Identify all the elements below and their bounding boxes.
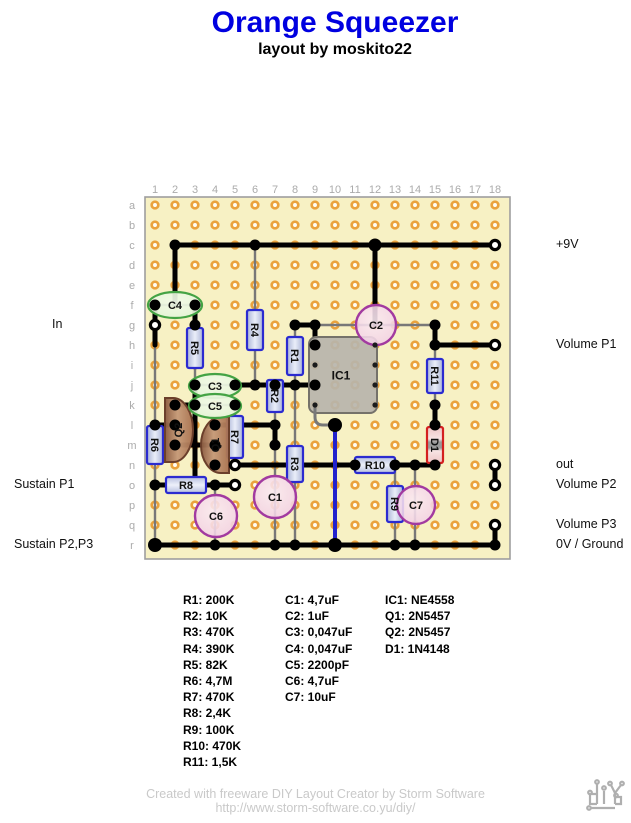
ic-pin [312,362,317,367]
terminal-pad[interactable] [230,480,239,489]
grid-column-label: 8 [292,184,298,196]
hole [192,262,199,269]
hole [492,222,499,229]
hole [472,422,479,429]
junction-dot [430,320,441,331]
hole [272,282,279,289]
hole [372,442,379,449]
hole [152,202,159,209]
hole [432,202,439,209]
component-label: R9 [388,497,400,511]
hole [172,322,179,329]
junction-dot [290,540,301,551]
hole [472,402,479,409]
grid-row-label: p [129,500,135,512]
hole [492,262,499,269]
diy-logo-glyph [587,780,624,810]
component-label: R7 [228,430,240,444]
junction-dot [310,340,321,351]
hole [292,282,299,289]
hole [452,362,459,369]
hole [472,462,479,469]
hole [352,482,359,489]
hole [352,422,359,429]
hole [232,302,239,309]
hole [232,202,239,209]
junction-dot [270,420,281,431]
hole [272,342,279,349]
grid-row-label: n [129,460,135,472]
ic-pin [372,402,377,407]
component-label: C5 [208,401,222,413]
component-label: IC1 [332,368,351,382]
hole [232,342,239,349]
hole [252,402,259,409]
legend-entry: C7: 10uF [285,689,352,705]
component-label: R5 [188,341,200,355]
ic-pin [372,342,377,347]
legend-entry: Q1: 2N5457 [385,608,454,624]
hole [452,382,459,389]
hole [152,282,159,289]
hole [392,282,399,289]
hole [472,362,479,369]
junction-dot [170,240,181,251]
hole [312,222,319,229]
hole [492,302,499,309]
terminal-label-left-sustain-p2-p3: Sustain P2,P3 [14,537,93,551]
legend-entry: C2: 1uF [285,608,352,624]
hole [492,442,499,449]
grid-row-label: e [129,280,135,292]
hole [212,222,219,229]
footer-url: http://www.storm-software.co.yu/diy/ [0,801,631,815]
terminal-pad[interactable] [230,460,239,469]
hole [412,362,419,369]
hole [292,262,299,269]
legend-entry: C5: 2200pF [285,657,352,673]
legend-column-3: IC1: NE4558Q1: 2N5457Q2: 2N5457D1: 1N414… [385,592,454,657]
terminal-label-right-volume-p2: Volume P2 [556,477,616,491]
grid-row-label: l [131,420,133,432]
hole [432,262,439,269]
terminal-pad[interactable] [490,340,499,349]
hole [452,302,459,309]
junction-dot [150,480,161,491]
hole [472,262,479,269]
hole [452,442,459,449]
hole [412,382,419,389]
hole [392,442,399,449]
hole [152,242,159,249]
hole [192,202,199,209]
grid-column-label: 11 [349,184,360,196]
hole [172,362,179,369]
hole [472,322,479,329]
terminal-label-right-out: out [556,457,573,471]
junction-dot [210,420,221,431]
legend-entry: R11: 1,5K [183,754,241,770]
legend-entry: C4: 0,047uF [285,641,352,657]
hole [452,402,459,409]
junction-dot [210,480,221,491]
grid-row-label: f [130,300,134,312]
hole [272,362,279,369]
junction-dot [430,460,441,471]
hole [412,442,419,449]
hole [452,222,459,229]
hole [172,502,179,509]
junction-dot [190,320,201,331]
grid-row-label: g [129,320,135,332]
hole [292,202,299,209]
legend-entry: Q2: 2N5457 [385,624,454,640]
junction-dot [328,418,342,432]
hole [372,502,379,509]
hole [232,282,239,289]
grid-row-label: h [129,340,135,352]
component-label: R11 [428,366,440,386]
hole [492,282,499,289]
hole [272,302,279,309]
hole [232,322,239,329]
hole [272,262,279,269]
hole [452,522,459,529]
hole [392,262,399,269]
junction-dot [250,240,261,251]
hole [212,262,219,269]
hole [212,302,219,309]
grid-row-label: c [129,240,135,252]
component-label: C6 [209,511,223,523]
junction-dot [150,420,161,431]
legend-entry: C1: 4,7uF [285,592,352,608]
hole [172,202,179,209]
hole [352,202,359,209]
hole [252,442,259,449]
hole [212,282,219,289]
grid-column-label: 7 [272,184,278,196]
hole [412,282,419,289]
hole [172,382,179,389]
grid-row-label: d [129,260,135,272]
hole [472,282,479,289]
hole [352,522,359,529]
junction-dot [270,440,281,451]
grid-column-label: 9 [312,184,318,196]
grid-column-label: 16 [449,184,461,196]
junction-dot [270,540,281,551]
junction-dot [369,239,382,252]
component-label: C1 [268,492,282,504]
hole [332,302,339,309]
grid-row-label: m [127,440,136,452]
legend-entry: R7: 470K [183,689,241,705]
component-label: C7 [409,500,423,512]
component-label: Q2 [173,423,185,438]
hole [352,442,359,449]
junction-dot [430,420,441,431]
hole [212,342,219,349]
junction-dot [190,300,201,311]
hole [492,502,499,509]
hole [492,402,499,409]
hole [392,402,399,409]
hole [312,282,319,289]
hole [392,202,399,209]
hole [452,282,459,289]
grid-row-label: i [131,360,133,372]
legend-entry: R2: 10K [183,608,241,624]
hole [232,222,239,229]
hole [352,262,359,269]
terminal-label-right-0v-ground: 0V / Ground [556,537,623,551]
terminal-pad[interactable] [490,240,499,249]
ic-pin [372,382,377,387]
hole [312,262,319,269]
grid-row-label: r [130,540,134,552]
hole [492,422,499,429]
hole [152,262,159,269]
hole [392,382,399,389]
hole [412,402,419,409]
hole [312,202,319,209]
hole [392,422,399,429]
diy-logo [584,774,630,820]
legend-entry: R3: 470K [183,624,241,640]
terminal-label-left-sustain-p1: Sustain P1 [14,477,74,491]
component-label: C3 [208,381,222,393]
hole [252,202,259,209]
component-label: D1 [428,438,440,452]
hole [432,482,439,489]
terminal-pad[interactable] [150,320,159,329]
hole [492,362,499,369]
component-label: C2 [369,320,383,332]
terminal-label-right-volume-p3: Volume P3 [556,517,616,531]
hole [292,222,299,229]
grid-row-label: j [130,380,133,392]
hole [172,522,179,529]
grid-column-label: 15 [429,184,441,196]
hole [372,202,379,209]
junction-dot [410,540,421,551]
legend-entry: C6: 4,7uF [285,673,352,689]
hole [252,522,259,529]
hole [332,222,339,229]
hole [472,382,479,389]
hole [452,482,459,489]
legend-column-1: R1: 200KR2: 10KR3: 470KR4: 390KR5: 82KR6… [183,592,241,770]
terminal-label-right-volume-p1: Volume P1 [556,337,616,351]
hole [432,302,439,309]
grid-column-label: 1 [152,184,158,196]
hole [372,482,379,489]
hole [332,202,339,209]
hole [212,202,219,209]
component-label: R4 [248,323,260,338]
junction-dot [390,540,401,551]
hole [392,342,399,349]
hole [472,502,479,509]
hole [452,502,459,509]
junction-dot [430,400,441,411]
hole [392,302,399,309]
hole [412,222,419,229]
hole [412,202,419,209]
junction-dot [290,380,301,391]
terminal-pad[interactable] [490,480,499,489]
grid-column-label: 3 [192,184,198,196]
grid-column-label: 14 [409,184,421,196]
terminal-pad[interactable] [490,460,499,469]
hole [312,442,319,449]
hole [172,222,179,229]
grid-column-label: 13 [389,184,401,196]
component-label: R10 [365,460,385,472]
grid-column-label: 2 [172,184,178,196]
component-label: R3 [288,457,300,471]
ic-pin [372,362,377,367]
junction-dot [190,400,201,411]
terminal-pad[interactable] [490,520,499,529]
grid-column-label: 12 [369,184,381,196]
grid-column-label: 6 [252,184,258,196]
hole [452,202,459,209]
hole [192,222,199,229]
junction-dot [230,380,241,391]
hole [472,202,479,209]
hole [432,282,439,289]
hole [452,322,459,329]
hole [412,422,419,429]
junction-dot [148,538,162,552]
junction-dot [310,320,321,331]
junction-dot [410,460,421,471]
hole [232,262,239,269]
grid-row-label: q [129,520,135,532]
junction-dot [350,460,361,471]
hole [412,262,419,269]
grid-column-label: 17 [469,184,481,196]
hole [432,522,439,529]
terminal-label-right--9v: +9V [556,237,579,251]
hole [472,222,479,229]
hole [232,362,239,369]
legend-entry: C3: 0,047uF [285,624,352,640]
grid-row-label: a [129,200,136,212]
junction-dot [150,300,161,311]
hole [432,222,439,229]
legend-entry: R4: 390K [183,641,241,657]
hole [492,322,499,329]
junction-dot [190,380,201,391]
hole [452,422,459,429]
terminal-label-left-in: In [52,317,62,331]
hole [272,322,279,329]
hole [472,522,479,529]
hole [372,222,379,229]
hole [352,302,359,309]
grid-column-label: 5 [232,184,238,196]
legend-entry: R8: 2,4K [183,705,241,721]
junction-dot [430,340,441,351]
legend-column-2: C1: 4,7uFC2: 1uFC3: 0,047uFC4: 0,047uFC5… [285,592,352,705]
hole [372,422,379,429]
junction-dot [310,380,321,391]
hole [332,262,339,269]
hole [452,462,459,469]
hole [312,302,319,309]
hole [212,322,219,329]
hole [272,202,279,209]
grid-column-label: 10 [329,184,341,196]
hole [272,222,279,229]
junction-dot [390,460,401,471]
junction-dot [170,440,181,451]
junction-dot [250,380,261,391]
legend-entry: R6: 4,7M [183,673,241,689]
hole [332,282,339,289]
legend-entry: IC1: NE4558 [385,592,454,608]
hole [152,222,159,229]
legend-entry: R5: 82K [183,657,241,673]
hole [492,382,499,389]
hole [452,262,459,269]
hole [252,222,259,229]
junction-dot [328,538,342,552]
hole [172,342,179,349]
hole [312,522,319,529]
hole [352,282,359,289]
legend-entry: R10: 470K [183,738,241,754]
component-label: R8 [179,480,193,492]
hole [492,202,499,209]
hole [352,222,359,229]
hole [472,302,479,309]
component-label: Q1 [210,438,222,453]
legend-entry: R9: 100K [183,722,241,738]
hole [472,482,479,489]
junction-dot [210,540,221,551]
hole [212,362,219,369]
hole [292,302,299,309]
hole [372,522,379,529]
grid-row-label: k [129,400,135,412]
component-label: C4 [168,300,183,312]
junction-dot [230,400,241,411]
legend-entry: R1: 200K [183,592,241,608]
footer-credit: Created with freeware DIY Layout Creator… [0,787,631,801]
grid-row-label: b [129,220,135,232]
junction-dot [170,400,181,411]
legend-entry: D1: 1N4148 [385,641,454,657]
grid-column-label: 18 [489,184,501,196]
hole [312,502,319,509]
hole [412,342,419,349]
hole [472,442,479,449]
hole [392,222,399,229]
component-label: R6 [148,438,160,452]
grid-column-label: 4 [212,184,218,196]
page: Orange Squeezer layout by moskito22 1234… [0,0,631,823]
hole [192,282,199,289]
hole [392,362,399,369]
hole [412,302,419,309]
junction-dot [290,320,301,331]
hole [312,482,319,489]
junction-dot [210,460,221,471]
